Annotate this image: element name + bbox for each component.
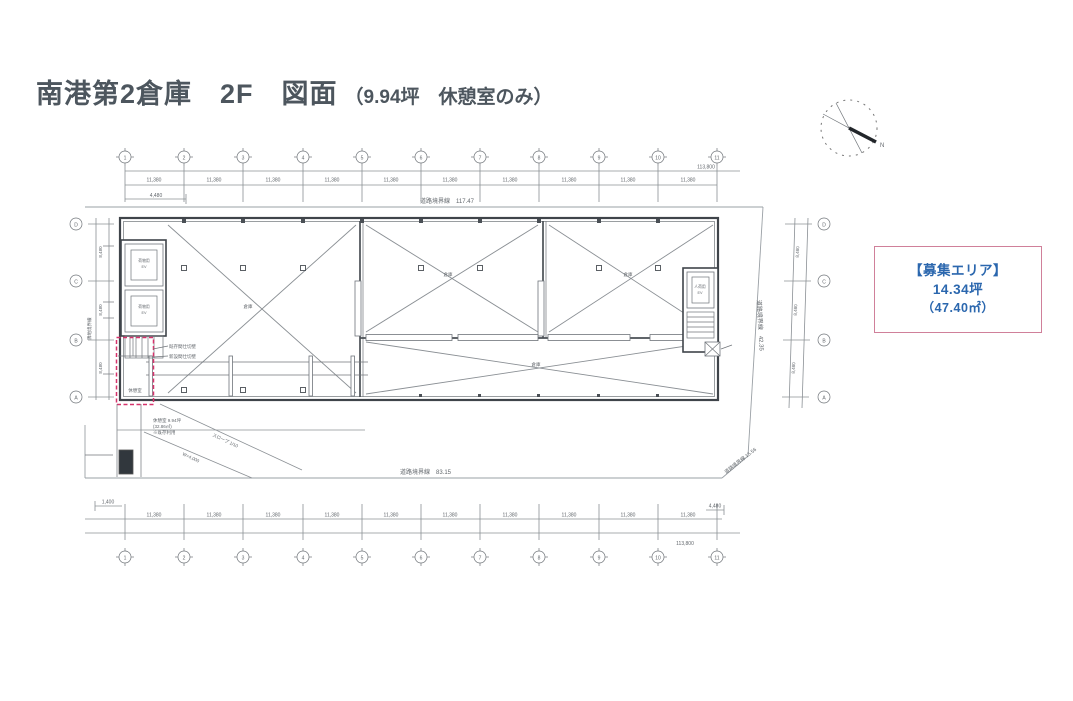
elevator-left-1-label: 荷物用 (138, 258, 150, 263)
grid-col-b11: 11 (714, 556, 719, 562)
grid-col-b4: 4 (302, 556, 305, 562)
dim-right-1: 8,480 (795, 246, 800, 258)
annex-note-line2: (32.86㎡) (153, 423, 172, 429)
right-core: 人荷用 EV (683, 268, 732, 356)
grid-col-b9: 9 (598, 556, 601, 562)
elevator-left-1-ev: EV (141, 265, 147, 269)
compass-icon: N (821, 100, 884, 156)
elevator-right (687, 272, 714, 308)
grid-col-7: 7 (479, 156, 482, 162)
boundary-label-right: 道路境界線 42.35 (755, 300, 766, 352)
dimension-band-left: 8,480 8,480 8,480 D C B A (70, 218, 114, 403)
building-outline (120, 218, 718, 400)
dim-bot-sub2: 4,480 (709, 504, 722, 510)
grid-row-left-a: A (74, 396, 78, 402)
dim-bot-total: 113,800 (676, 541, 694, 547)
grid-col-b8: 8 (538, 556, 541, 562)
dim-top-3: 11,380 (266, 178, 281, 184)
grid-row-right-b: B (822, 339, 826, 345)
dim-top-4: 11,380 (325, 178, 340, 184)
leader-note-1: 既存間仕切壁 (169, 343, 196, 350)
room-label-warehouse-1: 倉庫 (244, 303, 253, 310)
grid-col-8: 8 (538, 156, 541, 162)
grid-col-2: 2 (183, 156, 186, 162)
ramp-note-1: スロープ 1/10 (211, 432, 239, 449)
dim-top-6: 11,380 (443, 178, 458, 184)
room-label-warehouse-2: 倉庫 (444, 271, 453, 278)
dim-bot-5: 11,380 (384, 513, 399, 519)
grid-bubbles-top: 1 2 3 4 5 6 7 8 9 10 11 (116, 148, 726, 166)
annex-note-line3: ※既存利用 (153, 429, 176, 436)
grid-col-b1: 1 (124, 556, 127, 562)
grid-row-left-b: B (74, 339, 78, 345)
dim-left-2: 8,480 (98, 304, 103, 316)
dim-top-8: 11,380 (562, 178, 577, 184)
dim-bot-3: 11,380 (266, 513, 281, 519)
boundary-label-top: 道路境界線 117.47 (420, 197, 475, 205)
dim-left-1: 8,480 (98, 246, 103, 258)
dim-bot-8: 11,380 (562, 513, 577, 519)
grid-col-b10: 10 (655, 556, 661, 562)
grid-col-1: 1 (124, 156, 127, 162)
floor-plan-drawing: N 道路境界線 117.47 道路境界線 83.15 道路境界線 42.35 道… (0, 0, 1073, 701)
dim-top-9: 11,380 (621, 178, 636, 184)
room-label-warehouse-3: 倉庫 (624, 271, 633, 278)
grid-col-6: 6 (420, 156, 423, 162)
dim-bot-4: 11,380 (325, 513, 340, 519)
dim-bot-2: 11,380 (207, 513, 222, 519)
elevator-left-2-ev: EV (141, 311, 147, 315)
dim-bot-1: 11,380 (147, 513, 162, 519)
grid-row-right-a: A (822, 396, 826, 402)
elevator-left-2-label: 荷物用 (138, 304, 150, 309)
leader-note-2: 新設間仕切壁 (169, 353, 196, 360)
dim-right-3: 8,480 (791, 362, 796, 374)
dim-bot-6: 11,380 (443, 513, 458, 519)
dimension-band-bottom: 11,380 11,380 11,380 11,380 11,380 11,38… (85, 500, 740, 548)
grid-col-b5: 5 (361, 556, 364, 562)
grid-col-b7: 7 (479, 556, 482, 562)
dim-top-5: 11,380 (384, 178, 399, 184)
dim-top-2: 11,380 (207, 178, 222, 184)
grid-col-b3: 3 (242, 556, 245, 562)
boundary-label-left: 隣地境界線 (86, 317, 93, 340)
boundary-label-corner: 道路境界線 15.56 (723, 446, 758, 476)
compass-north-label: N (880, 143, 884, 149)
boundary-label-bottom: 道路境界線 83.15 (400, 468, 452, 476)
grid-col-5: 5 (361, 156, 364, 162)
page: 南港第2倉庫 2F 図面（9.94坪 休憩室のみ） 【募集エリア】 14.34坪… (0, 0, 1073, 701)
break-room-label: 休憩室 (128, 387, 142, 394)
grid-row-right-d: D (822, 223, 826, 229)
grid-col-3: 3 (242, 156, 245, 162)
grid-bubbles-bottom: 1 2 3 4 5 6 7 8 9 10 11 (116, 548, 726, 566)
dim-left-3: 8,480 (98, 362, 103, 374)
annex-note-line1: 休憩室 9.94坪 (153, 417, 182, 424)
grid-row-right-c: C (822, 280, 826, 286)
grid-row-left-d: D (74, 223, 78, 229)
grid-col-b6: 6 (420, 556, 423, 562)
dim-bot-9: 11,380 (621, 513, 636, 519)
dim-top-7: 11,380 (503, 178, 518, 184)
dim-top-total: 113,800 (697, 165, 715, 171)
dock-block (119, 450, 133, 474)
dim-bot-7: 11,380 (503, 513, 518, 519)
dim-top-10: 11,380 (681, 178, 696, 184)
grid-col-b2: 2 (183, 556, 186, 562)
dimension-band-right: 8,480 8,480 8,480 D C B A (782, 218, 830, 408)
dim-bot-10: 11,380 (681, 513, 696, 519)
grid-col-9: 9 (598, 156, 601, 162)
ramp-note-2: W=4,000 (182, 451, 201, 463)
dim-bot-sub1: 1,400 (102, 500, 115, 506)
dim-top-sub: 4,480 (150, 193, 163, 199)
grid-col-11: 11 (714, 156, 719, 162)
dim-right-2: 8,480 (793, 304, 798, 316)
room-label-warehouse-4: 倉庫 (532, 361, 541, 368)
elevator-right-ev: EV (697, 291, 703, 295)
yard-annex: スロープ 1/10 W=4,000 休憩室 9.94坪 (32.86㎡) ※既存… (117, 404, 365, 478)
grid-col-4: 4 (302, 156, 305, 162)
grid-row-left-c: C (74, 280, 78, 286)
elevator-right-label: 人荷用 (694, 284, 706, 289)
grid-col-10: 10 (655, 156, 661, 162)
dim-top-1: 11,380 (147, 178, 162, 184)
